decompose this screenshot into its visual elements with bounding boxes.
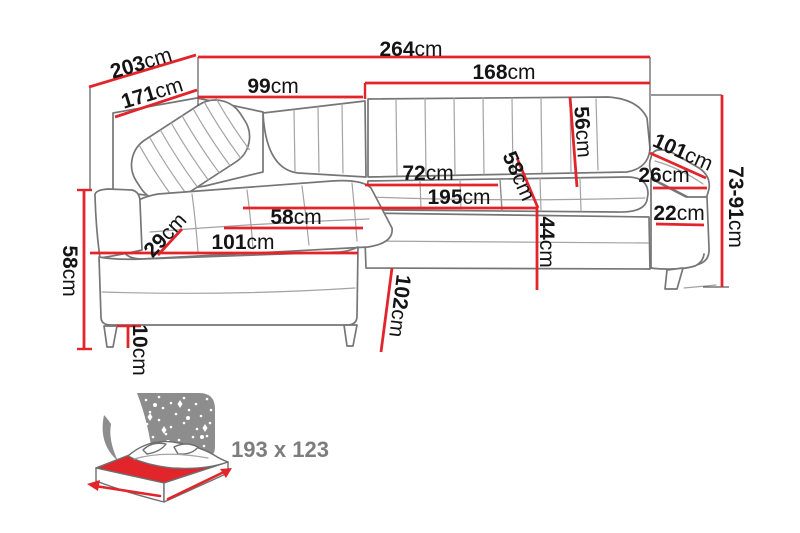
svg-text:26cm: 26cm (638, 164, 689, 187)
dimension-label-front-length: 195cm (427, 186, 490, 209)
svg-text:99cm: 99cm (247, 75, 298, 98)
svg-text:58cm: 58cm (270, 206, 321, 229)
sofa-leg (104, 326, 117, 347)
chaise-base (99, 247, 358, 325)
diagram-canvas: 264cm203cm171cm99cm168cm56cm101cm26cm73-… (0, 0, 800, 533)
svg-text:72cm: 72cm (402, 162, 453, 185)
sofa-leg (665, 268, 683, 289)
svg-text:58cm: 58cm (58, 245, 81, 296)
dimension-label-armrest-top-width: 26cm (638, 164, 689, 187)
sofa-leg (344, 325, 357, 346)
dimension-label-backrest-height: 56cm (569, 106, 596, 159)
dimension-label-overall-width: 264cm (379, 38, 442, 61)
svg-text:264cm: 264cm (379, 38, 442, 61)
svg-text:44cm: 44cm (535, 216, 558, 267)
dimension-label-seat-front-height: 44cm (535, 216, 558, 267)
bed-headboard-crescent (103, 415, 118, 461)
dimension-label-right-back-width: 168cm (472, 61, 535, 84)
dimension-label-chaise-side-height: 58cm (58, 245, 81, 296)
bed-size-label: 193 x 123 (231, 437, 329, 462)
svg-text:56cm: 56cm (569, 106, 596, 159)
svg-text:22cm: 22cm (653, 202, 704, 225)
backrest-corner (263, 101, 366, 177)
svg-text:73-91cm: 73-91cm (724, 166, 747, 248)
dimension-label-armrest-side-height: 22cm (653, 202, 704, 225)
svg-text:195cm: 195cm (427, 186, 490, 209)
dimension-label-chaise-seat-width: 58cm (270, 206, 321, 229)
dimension-label-overall-height: 73-91cm (724, 166, 747, 248)
svg-text:101cm: 101cm (211, 231, 274, 254)
sofa-dimension-diagram: 264cm203cm171cm99cm168cm56cm101cm26cm73-… (0, 0, 800, 533)
dimension-label-corner-back-width: 99cm (247, 75, 298, 98)
svg-text:10cm: 10cm (128, 324, 151, 375)
svg-text:168cm: 168cm (472, 61, 535, 84)
bed-icon: 193 x 123 (87, 393, 329, 502)
chaise-armrest (95, 189, 142, 258)
bed-width-arrowhead (87, 480, 100, 491)
dimension-label-chaise-length: 101cm (211, 231, 274, 254)
dimension-label-seat-depth-right: 72cm (402, 162, 453, 185)
dimension-label-leg-height: 10cm (128, 324, 151, 375)
